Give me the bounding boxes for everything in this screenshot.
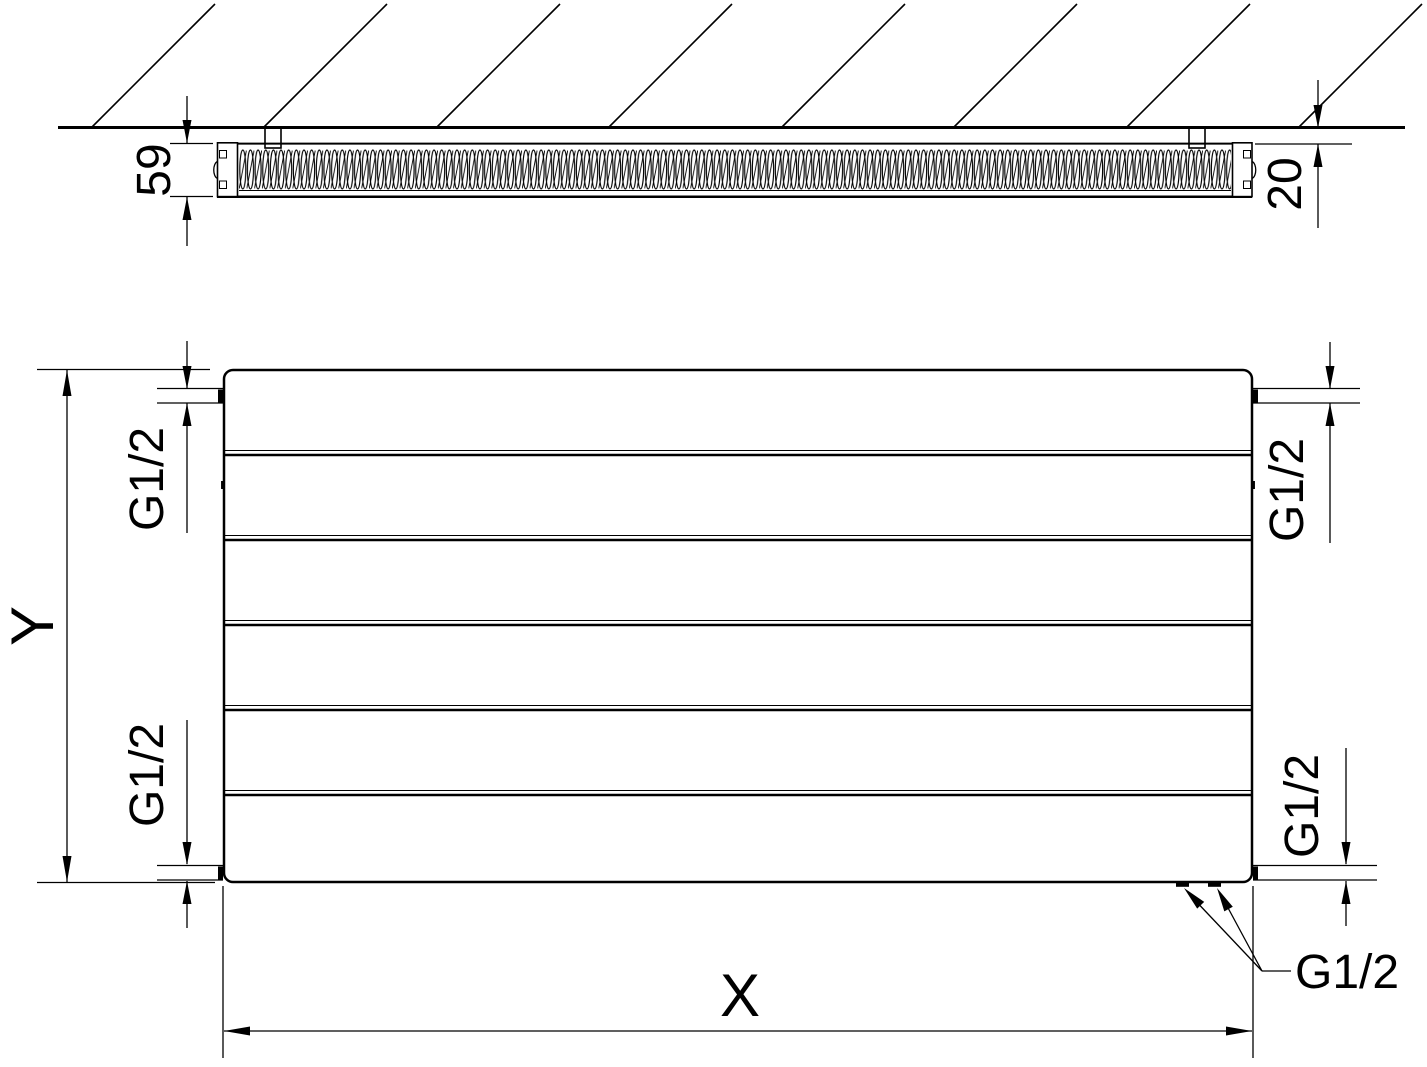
radiator-technical-drawing: 59 20 <box>0 0 1427 1067</box>
stub-top-right <box>1253 389 1360 404</box>
g12-bottom-callout-label: G1/2 <box>1295 946 1399 999</box>
technical-drawing-page: 59 20 <box>0 0 1427 1067</box>
height-y-label: Y <box>0 606 66 646</box>
g12-bottom-left-label: G1/2 <box>121 723 174 827</box>
wall-gap-20-label: 20 <box>1259 157 1312 210</box>
stub-top-left <box>157 389 223 404</box>
radiator-section <box>214 143 1256 197</box>
mounting-bracket-right <box>1189 127 1205 148</box>
end-cap-left <box>214 143 238 197</box>
front-view: G1/2 G1/2 G1/2 G1/2 <box>0 341 1399 1058</box>
g12-top-right-label: G1/2 <box>1261 438 1314 542</box>
callout-g12-bottom: G1/2 <box>1184 888 1399 999</box>
dimension-height-y: Y <box>0 370 215 883</box>
stub-bottom-right <box>1253 866 1377 881</box>
dimension-g12-bottom-left: G1/2 <box>121 720 192 928</box>
bottom-connection-mark-left <box>1176 883 1189 887</box>
mounting-bracket-left <box>265 127 281 148</box>
end-cap-right <box>1233 143 1256 197</box>
dimension-g12-bottom-right: G1/2 <box>1276 748 1351 926</box>
bottom-connection-mark-right <box>1208 883 1221 887</box>
g12-top-left-label: G1/2 <box>121 427 174 531</box>
dimension-width-x: X <box>223 886 1253 1058</box>
dimension-g12-top-right: G1/2 <box>1261 342 1335 543</box>
depth-59-label: 59 <box>128 143 181 196</box>
dimension-depth-59: 59 <box>128 96 213 246</box>
wall-hatching <box>92 4 1422 127</box>
stub-bottom-left <box>157 866 223 881</box>
g12-bottom-right-label: G1/2 <box>1276 754 1329 858</box>
convector-fins <box>239 149 1231 190</box>
width-x-label: X <box>720 962 760 1029</box>
section-view: 59 20 <box>58 4 1422 246</box>
dimension-wall-gap-20: 20 <box>1255 80 1352 228</box>
